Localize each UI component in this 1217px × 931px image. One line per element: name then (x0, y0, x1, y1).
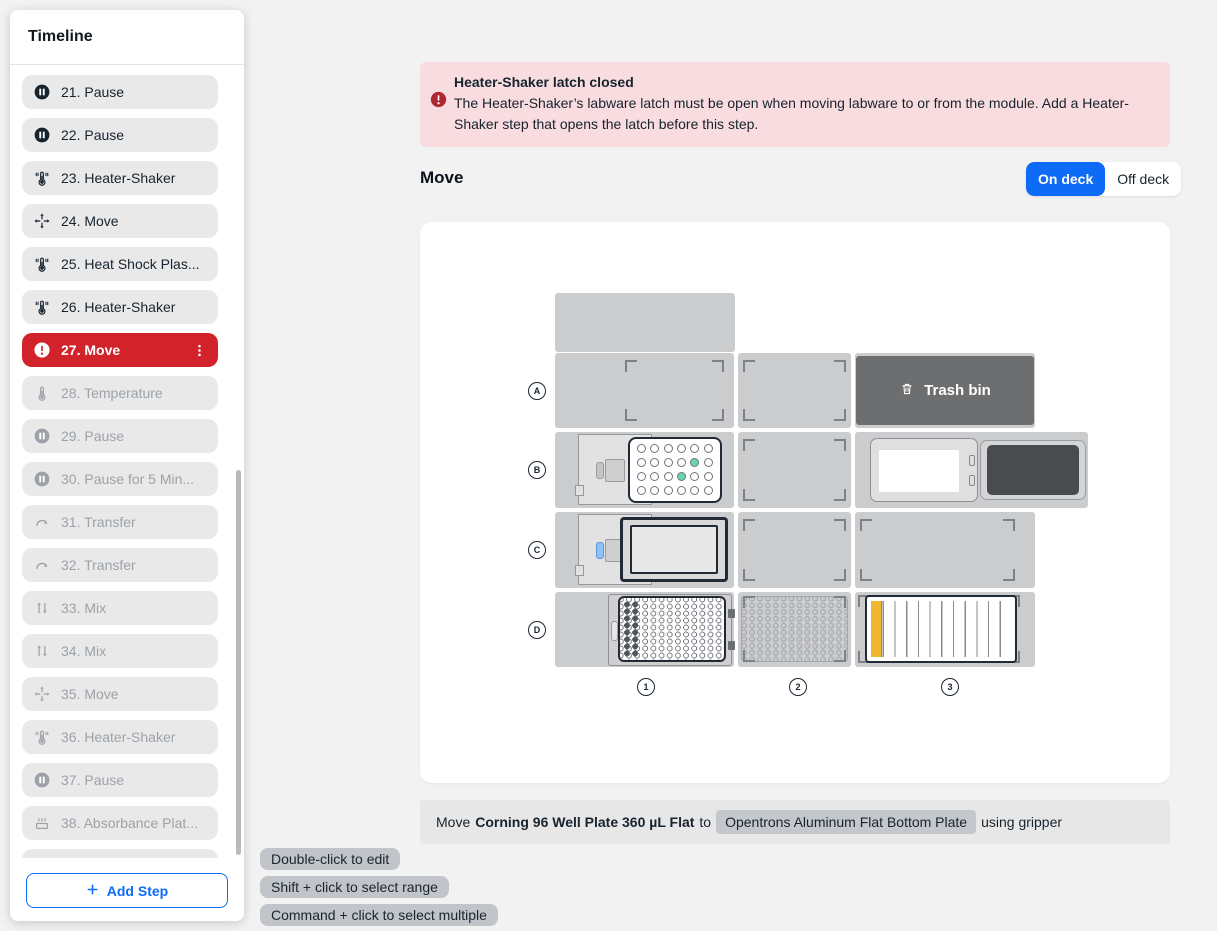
timeline-step-list[interactable]: 21. Pause22. Pause23. Heater-Shaker24. M… (10, 66, 244, 858)
alert-icon (33, 341, 51, 359)
adapter-notch (611, 621, 618, 641)
well (690, 444, 699, 453)
timeline-step-38[interactable]: 38. Absorbance Plat... (22, 806, 218, 840)
step-label: 25. Heat Shock Plas... (61, 256, 200, 272)
timeline-sidebar: Timeline 21. Pause22. Pause23. Heater-Sh… (10, 10, 244, 921)
pause-icon (33, 126, 51, 144)
column-label-1: 1 (637, 678, 655, 696)
slot-corner-marks (860, 519, 1015, 581)
well-with-liquid (690, 458, 699, 467)
reservoir-liquid-yellow (871, 601, 882, 657)
well-plate-24-B1[interactable] (628, 437, 722, 503)
heater-shaker-icon (33, 255, 51, 273)
step-label: 24. Move (61, 213, 119, 229)
hint-tooltip: Double-click to edit (260, 848, 400, 870)
well (677, 444, 686, 453)
transfer-icon (33, 513, 51, 531)
pause-icon (33, 470, 51, 488)
mix-icon (33, 599, 51, 617)
summary-suffix: using gripper (981, 814, 1062, 830)
alert-circle-icon (430, 91, 447, 108)
deck-toggle: On deck Off deck (1026, 162, 1181, 196)
timeline-step-35[interactable]: 35. Move (22, 677, 218, 711)
deck-slot-D2[interactable] (738, 592, 851, 667)
step-label: 30. Pause for 5 Min... (61, 471, 194, 487)
module-foot (575, 485, 584, 496)
heater-shaker-icon (33, 169, 51, 187)
step-label: 22. Pause (61, 127, 124, 143)
well (677, 486, 686, 495)
trash-label: Trash bin (924, 382, 991, 399)
deck-map: Trash bin (420, 222, 1170, 783)
kebab-menu-icon[interactable] (192, 343, 207, 358)
timeline-step-32[interactable]: 32. Transfer (22, 548, 218, 582)
slot-corner-marks (743, 519, 846, 581)
well-with-liquid (677, 472, 686, 481)
row-label-B: B (528, 461, 546, 479)
filled-wells (623, 601, 640, 657)
timeline-step-22[interactable]: 22. Pause (22, 118, 218, 152)
reader-window (879, 450, 959, 492)
deck-extension-top (555, 293, 735, 352)
timeline-footer: Add Step (10, 858, 244, 921)
toggle-on-deck[interactable]: On deck (1026, 162, 1105, 196)
deck-slot-A2[interactable] (738, 353, 851, 428)
corning-96-well-plate-D1[interactable] (618, 596, 726, 662)
module-button (605, 459, 625, 482)
row-label-A: A (528, 382, 546, 400)
aluminum-flat-bottom-plate-C1[interactable] (620, 517, 728, 582)
well (637, 444, 646, 453)
module-light-on (596, 542, 604, 559)
deck-slot-A1[interactable] (555, 353, 734, 428)
step-label: 38. Absorbance Plat... (61, 815, 198, 831)
absorbance-icon (33, 814, 51, 832)
heater-shaker-icon (33, 728, 51, 746)
timeline-step-31[interactable]: 31. Transfer (22, 505, 218, 539)
deck-slot-B2[interactable] (738, 432, 851, 508)
well (690, 486, 699, 495)
step-label: 32. Transfer (61, 557, 136, 573)
step-label: 33. Mix (61, 600, 106, 616)
timeline-title: Timeline (28, 28, 93, 46)
well (650, 486, 659, 495)
timeline-step-37[interactable]: 37. Pause (22, 763, 218, 797)
step-label: 23. Heater-Shaker (61, 170, 175, 186)
timeline-step-24[interactable]: 24. Move (22, 204, 218, 238)
error-banner: Heater-Shaker latch closed The Heater-Sh… (420, 62, 1170, 147)
protocol-designer-app: Timeline 21. Pause22. Pause23. Heater-Sh… (0, 0, 1217, 931)
row-label-C: C (528, 541, 546, 559)
step-label: 28. Temperature (61, 385, 163, 401)
pause-icon (33, 83, 51, 101)
add-step-label: Add Step (107, 883, 168, 899)
step-label: 21. Pause (61, 84, 124, 100)
step-label: 27. Move (61, 342, 120, 358)
column-label-3: 3 (941, 678, 959, 696)
page-title: Move (420, 168, 463, 188)
timeline-step-36[interactable]: 36. Heater-Shaker (22, 720, 218, 754)
plus-icon (86, 883, 99, 899)
module-light (596, 462, 604, 479)
timeline-step-39[interactable]: 39. Heater-Shaker (22, 849, 218, 858)
trash-icon (899, 381, 915, 401)
summary-connector: to (699, 814, 711, 830)
well (650, 472, 659, 481)
reservoir-12-channel-D3[interactable] (865, 595, 1017, 663)
error-banner-body: The Heater-Shaker’s labware latch must b… (454, 93, 1154, 135)
timeline-step-27[interactable]: 27. Move (22, 333, 218, 367)
well (664, 472, 673, 481)
well (690, 472, 699, 481)
step-label: 31. Transfer (61, 514, 136, 530)
error-banner-title: Heater-Shaker latch closed (454, 72, 1154, 93)
adapter-clip (728, 641, 735, 650)
toggle-off-deck[interactable]: Off deck (1105, 162, 1181, 196)
timeline-header: Timeline (10, 10, 244, 65)
step-label: 34. Mix (61, 643, 106, 659)
timeline-step-21[interactable]: 21. Pause (22, 75, 218, 109)
timeline-step-23[interactable]: 23. Heater-Shaker (22, 161, 218, 195)
pause-icon (33, 427, 51, 445)
reader-latch (969, 455, 975, 466)
heater-shaker-icon (33, 298, 51, 316)
slot-corner-marks (743, 439, 846, 501)
timeline-step-33[interactable]: 33. Mix (22, 591, 218, 625)
slot-corner-marks (743, 596, 846, 662)
step-summary: Move Corning 96 Well Plate 360 µL Flat t… (420, 800, 1170, 844)
temperature-icon (33, 384, 51, 402)
deck-slot-C2[interactable] (738, 512, 851, 588)
well (704, 486, 713, 495)
well (664, 458, 673, 467)
hint-tooltip: Command + click to select multiple (260, 904, 498, 926)
well (704, 444, 713, 453)
well (664, 486, 673, 495)
timeline-step-25[interactable]: 25. Heat Shock Plas... (22, 247, 218, 281)
deck-slot-C3[interactable] (855, 512, 1035, 588)
timeline-step-26[interactable]: 26. Heater-Shaker (22, 290, 218, 324)
summary-prefix: Move (436, 814, 470, 830)
timeline-step-29[interactable]: 29. Pause (22, 419, 218, 453)
adapter-clip (728, 609, 735, 618)
well (677, 458, 686, 467)
step-label: 36. Heater-Shaker (61, 729, 175, 745)
well (637, 486, 646, 495)
step-label: 35. Move (61, 686, 119, 702)
add-step-button[interactable]: Add Step (26, 873, 228, 908)
summary-destination-chip: Opentrons Aluminum Flat Bottom Plate (716, 810, 976, 834)
well (650, 458, 659, 467)
module-foot (575, 565, 584, 576)
absorbance-reader-lid-dock[interactable] (980, 440, 1086, 500)
summary-source-labware: Corning 96 Well Plate 360 µL Flat (475, 814, 694, 830)
pause-icon (33, 771, 51, 789)
well (637, 458, 646, 467)
well (664, 444, 673, 453)
column-label-2: 2 (789, 678, 807, 696)
hint-tooltip: Shift + click to select range (260, 876, 449, 898)
timeline-step-34[interactable]: 34. Mix (22, 634, 218, 668)
well (704, 458, 713, 467)
mix-icon (33, 642, 51, 660)
reader-lid (987, 445, 1079, 495)
timeline-step-28[interactable]: 28. Temperature (22, 376, 218, 410)
row-label-D: D (528, 621, 546, 639)
timeline-scrollbar-thumb[interactable] (236, 470, 241, 855)
plate-surface (630, 525, 718, 574)
move-icon (33, 212, 51, 230)
well (704, 472, 713, 481)
transfer-icon (33, 556, 51, 574)
well (650, 444, 659, 453)
reservoir-channels (871, 601, 1011, 657)
step-label: 29. Pause (61, 428, 124, 444)
trash-bin[interactable]: Trash bin (856, 356, 1034, 425)
step-label: 37. Pause (61, 772, 124, 788)
slot-corner-marks (625, 360, 724, 421)
absorbance-reader-B3[interactable] (870, 438, 978, 502)
reader-latch (969, 475, 975, 486)
well (637, 472, 646, 481)
timeline-step-30[interactable]: 30. Pause for 5 Min... (22, 462, 218, 496)
step-label: 26. Heater-Shaker (61, 299, 175, 315)
slot-corner-marks (743, 360, 846, 421)
move-icon (33, 685, 51, 703)
